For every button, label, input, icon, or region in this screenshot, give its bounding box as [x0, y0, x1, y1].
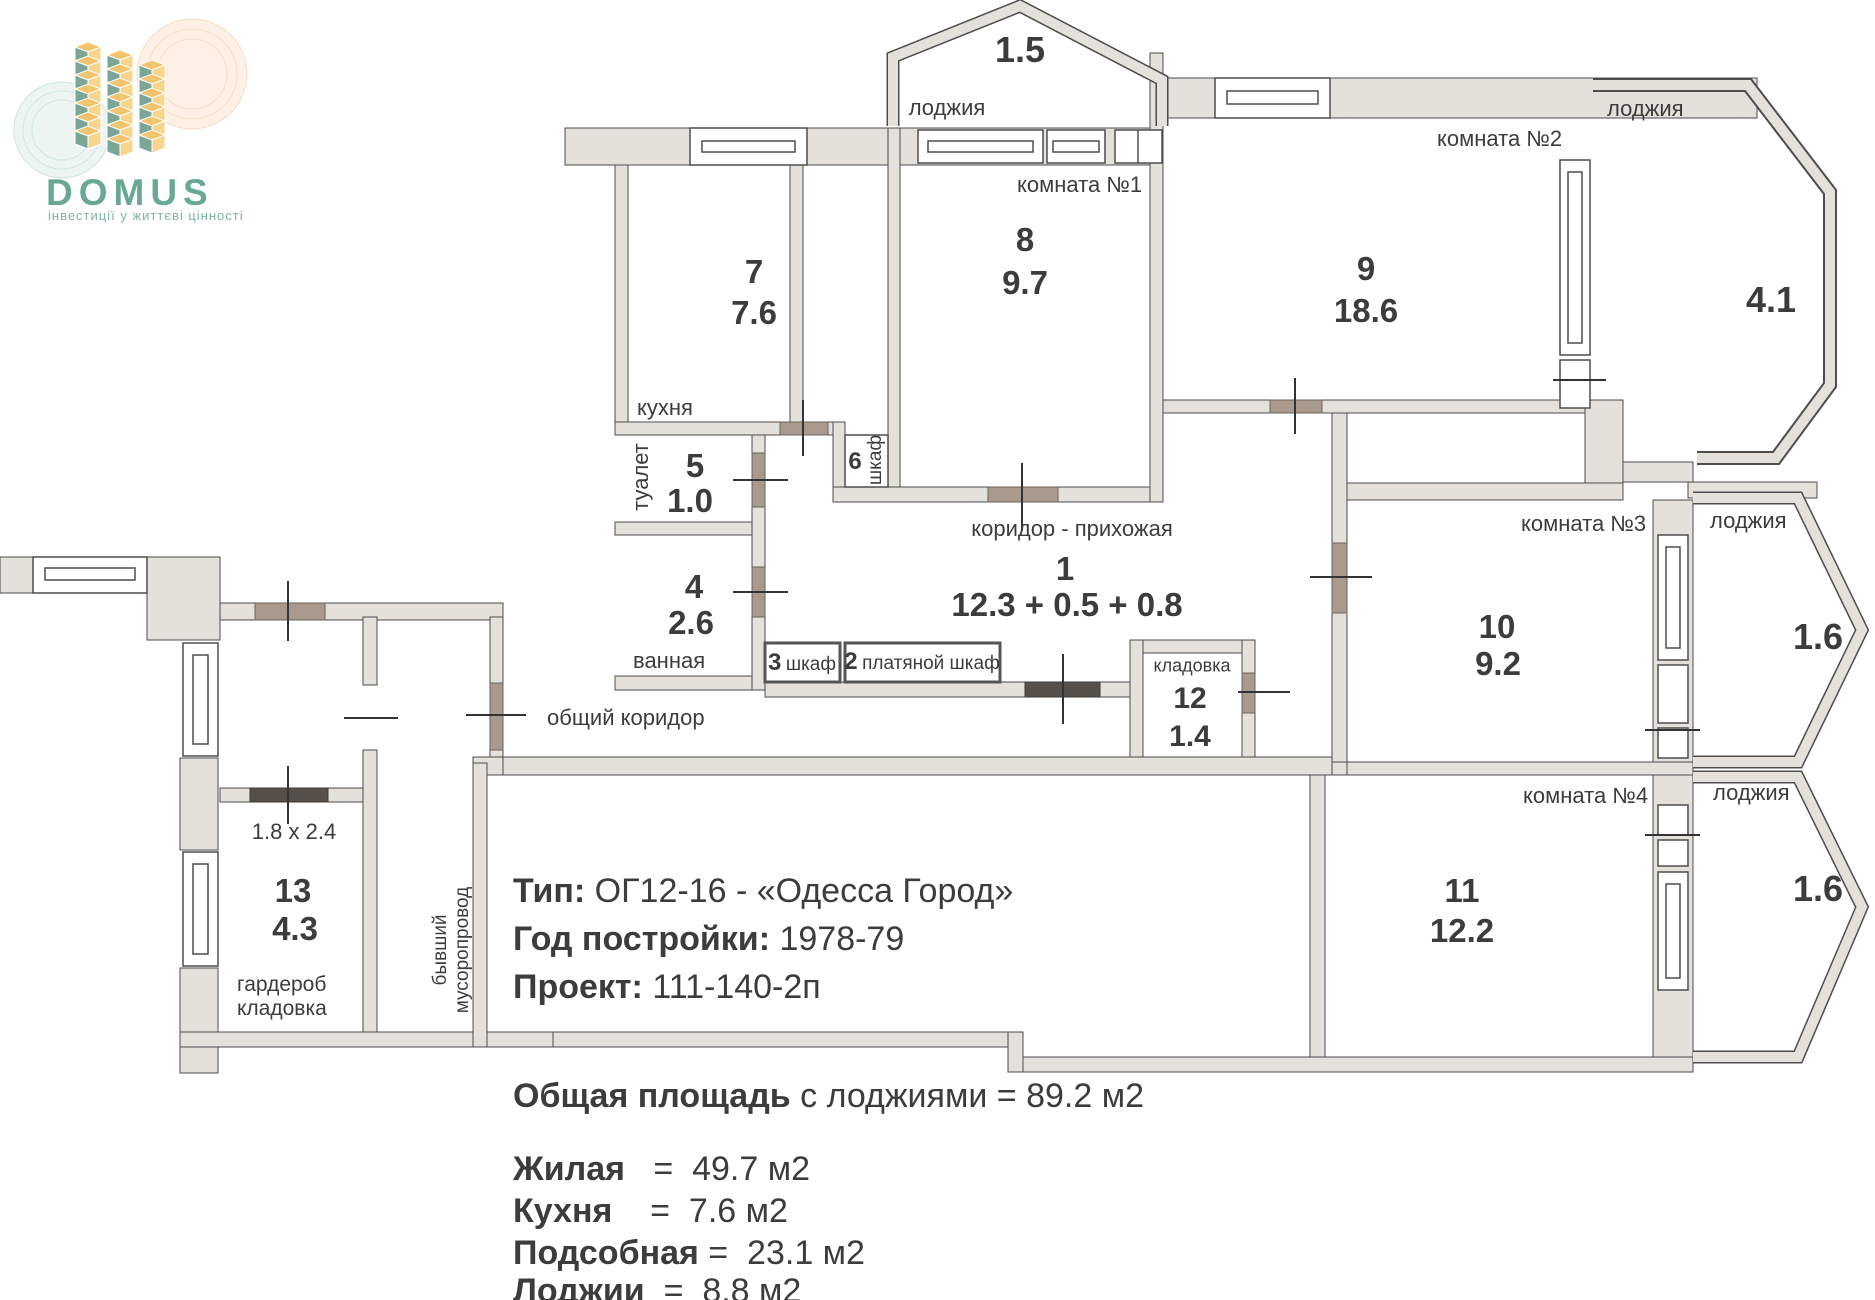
info-project-label: Проект: [513, 968, 643, 1006]
closet2-label: платяной шкаф [862, 653, 1000, 674]
wardrobe-label-1: гардероб [237, 973, 326, 997]
loggia-low-label: лоджия [1713, 780, 1790, 806]
summary-row-label: Лоджии [513, 1272, 645, 1300]
windows-group [33, 78, 1688, 990]
wardrobe-number: 13 [275, 872, 312, 910]
hall-label: коридор - прихожая [971, 516, 1173, 542]
summary-row-utility: Подсобная = 23.1 м2 [513, 1234, 865, 1273]
wardrobe-dim: 1.8 x 2.4 [252, 819, 336, 845]
summary-row-value: = 23.1 м2 [699, 1234, 865, 1272]
closet2-box-label: 2 платяной шкаф [844, 648, 999, 676]
wardrobe-label-2: кладовка [237, 997, 327, 1021]
info-year-line: Год постройки: 1978-79 [513, 920, 904, 959]
loggia-mid-label: лоджия [1710, 508, 1787, 534]
toilet-area: 1.0 [667, 482, 713, 520]
pantry-label: кладовка [1154, 656, 1231, 677]
floor-plan-page: DOMUS інвестиції у життєві цінності [0, 0, 1875, 1300]
chute-label: бывший мусоропровод [430, 887, 474, 1014]
room4-area: 12.2 [1430, 912, 1494, 950]
bath-label: ванная [633, 648, 705, 674]
toilet-number: 5 [686, 447, 704, 485]
info-project-value: 111-140-2п [643, 968, 821, 1006]
room2-number: 9 [1357, 250, 1375, 288]
room4-number: 11 [1445, 872, 1480, 910]
info-type-value: ОГ12-16 - «Одесса Город» [585, 872, 1013, 910]
info-type-line: Тип: ОГ12-16 - «Одесса Город» [513, 872, 1013, 911]
room4-label: комната №4 [1523, 783, 1648, 809]
room1-area: 9.7 [1002, 264, 1048, 302]
room1-number: 8 [1016, 221, 1034, 259]
info-project-line: Проект: 111-140-2п [513, 968, 821, 1007]
closet3-box-label: 3 шкаф [768, 649, 836, 677]
summary-row-label: Жилая [513, 1150, 625, 1188]
summary-row-value: = 8.8 м2 [645, 1272, 802, 1300]
loggia-top-label: лоджия [909, 95, 986, 121]
room2-label: комната №2 [1437, 126, 1562, 152]
summary-row-loggias: Лоджии = 8.8 м2 [513, 1272, 801, 1300]
room1-label: комната №1 [1017, 172, 1142, 198]
pantry-number: 12 [1173, 682, 1206, 716]
loggia-low-area: 1.6 [1793, 868, 1843, 910]
hall-number: 1 [1056, 550, 1074, 588]
summary-row-label: Подсобная [513, 1234, 699, 1272]
summary-total-value: с лоджиями = 89.2 м2 [791, 1077, 1144, 1115]
closet6-number: 6 [848, 448, 861, 476]
summary-row-label: Кухня [513, 1192, 612, 1230]
room2-area: 18.6 [1334, 292, 1398, 330]
wardrobe-area: 4.3 [272, 910, 318, 948]
kitchen-label: кухня [637, 395, 693, 421]
summary-total-label: Общая площадь [513, 1077, 791, 1115]
room3-area: 9.2 [1475, 645, 1521, 683]
common-corridor-label: общий коридор [547, 705, 705, 731]
loggia-right-label: лоджия [1607, 96, 1684, 122]
summary-row-value: = 49.7 м2 [625, 1150, 810, 1188]
room3-label: комната №3 [1521, 511, 1646, 537]
loggia-mid-area: 1.6 [1793, 616, 1843, 658]
summary-row-living: Жилая = 49.7 м2 [513, 1150, 810, 1189]
pantry-area: 1.4 [1169, 720, 1211, 754]
room3-number: 10 [1479, 608, 1516, 646]
summary-row-kitchen: Кухня = 7.6 м2 [513, 1192, 788, 1231]
info-year-value: 1978-79 [770, 920, 904, 958]
loggia-top-area: 1.5 [995, 29, 1045, 71]
info-year-label: Год постройки: [513, 920, 770, 958]
chute-label-2: мусоропровод [452, 887, 474, 1014]
kitchen-number: 7 [745, 253, 763, 291]
loggia-right-area: 4.1 [1746, 279, 1796, 321]
closet3-label: шкаф [786, 654, 836, 675]
summary-row-value: = 7.6 м2 [612, 1192, 788, 1230]
closet6-label: шкаф [865, 435, 887, 485]
closet3-number: 3 [768, 649, 781, 676]
toilet-label: туалет [628, 443, 654, 511]
chute-label-1: бывший [430, 887, 452, 1014]
summary-total-line: Общая площадь с лоджиями = 89.2 м2 [513, 1077, 1144, 1116]
bath-area: 2.6 [668, 604, 714, 642]
kitchen-area: 7.6 [731, 294, 777, 332]
closet2-number: 2 [844, 648, 857, 675]
info-type-label: Тип: [513, 872, 585, 910]
bath-number: 4 [685, 568, 703, 606]
hall-area: 12.3 + 0.5 + 0.8 [951, 586, 1182, 624]
